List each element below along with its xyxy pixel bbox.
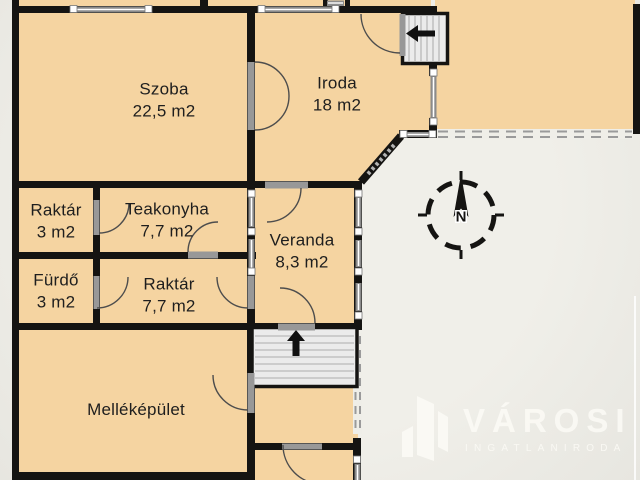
- room-area: 7,7 m2: [142, 296, 195, 318]
- room-fill-top-right: [435, 0, 635, 130]
- room-name: Teakonyha: [125, 200, 209, 219]
- upper-staircase: [403, 14, 448, 64]
- room-label-teakonyha: Teakonyha 7,7 m2: [125, 199, 209, 244]
- door-leaf: [188, 252, 218, 259]
- door-leaf: [248, 62, 255, 130]
- door-leaf: [248, 276, 255, 309]
- door-leaf: [282, 444, 322, 450]
- brand-tagline: INGATLANIRODA: [465, 443, 632, 454]
- watermark-logo: VÁROSI INGATLANIRODA: [400, 390, 632, 464]
- compass-icon: N: [418, 171, 504, 259]
- window: [406, 132, 431, 137]
- room-name: Melléképület: [87, 400, 185, 419]
- room-label-raktar-large: Raktár 7,7 m2: [142, 274, 195, 319]
- room-label-furdo: Fürdő 3 m2: [33, 270, 78, 315]
- wall-segment: [633, 4, 640, 134]
- window: [249, 197, 255, 227]
- wall-segment: [12, 472, 255, 480]
- plot-edge-line: [634, 296, 636, 480]
- room-area: 3 m2: [30, 222, 81, 244]
- window: [249, 239, 255, 269]
- stair-treads: [255, 336, 354, 378]
- brand-building-icon: [400, 390, 452, 464]
- room-label-mellekepulet: Melléképület: [87, 399, 185, 421]
- room-name: Raktár: [143, 275, 194, 294]
- window: [263, 7, 335, 13]
- wall-segment: [345, 0, 350, 7]
- wall-segment: [12, 181, 361, 188]
- window: [355, 464, 361, 480]
- window: [356, 197, 362, 227]
- floorplan-canvas: N Szoba 22,5 m2 Iroda 18 m2 Raktár 3 m2 …: [0, 0, 640, 480]
- room-label-veranda: Veranda 8,3 m2: [270, 230, 335, 275]
- window: [356, 283, 362, 311]
- room-label-iroda: Iroda 18 m2: [313, 73, 361, 118]
- door-leaf: [94, 200, 100, 235]
- open-boundaries: [353, 129, 633, 434]
- room-label-raktar-small: Raktár 3 m2: [30, 200, 81, 245]
- room-area: 3 m2: [33, 292, 78, 314]
- door-leaf: [278, 324, 315, 331]
- brand-name: VÁROSI: [463, 404, 632, 437]
- room-area: 7,7 m2: [125, 221, 209, 243]
- compass-north-label: N: [456, 209, 467, 226]
- room-name: Fürdő: [33, 271, 78, 290]
- wall-segment: [200, 0, 208, 7]
- room-area: 22,5 m2: [133, 101, 196, 123]
- door-leaf: [265, 182, 308, 189]
- door-leaf: [94, 276, 100, 309]
- room-area: 8,3 m2: [270, 252, 335, 274]
- brand-text-block: VÁROSI INGATLANIRODA: [463, 390, 632, 454]
- door-leaf: [248, 373, 255, 413]
- room-name: Iroda: [317, 74, 357, 93]
- open-boundary-band-horizontal: [437, 129, 633, 139]
- room-name: Szoba: [139, 80, 188, 99]
- window: [431, 76, 437, 118]
- window: [75, 7, 148, 13]
- window: [356, 240, 362, 267]
- room-fill-main-house: [19, 0, 431, 181]
- door-leaf: [400, 14, 406, 56]
- room-name: Raktár: [30, 201, 81, 220]
- room-name: Veranda: [270, 231, 335, 250]
- lower-staircase: [252, 328, 357, 387]
- room-area: 18 m2: [313, 95, 361, 117]
- room-label-szoba: Szoba 22,5 m2: [133, 79, 196, 124]
- wall-segment: [12, 252, 256, 259]
- wall-segment: [12, 0, 19, 480]
